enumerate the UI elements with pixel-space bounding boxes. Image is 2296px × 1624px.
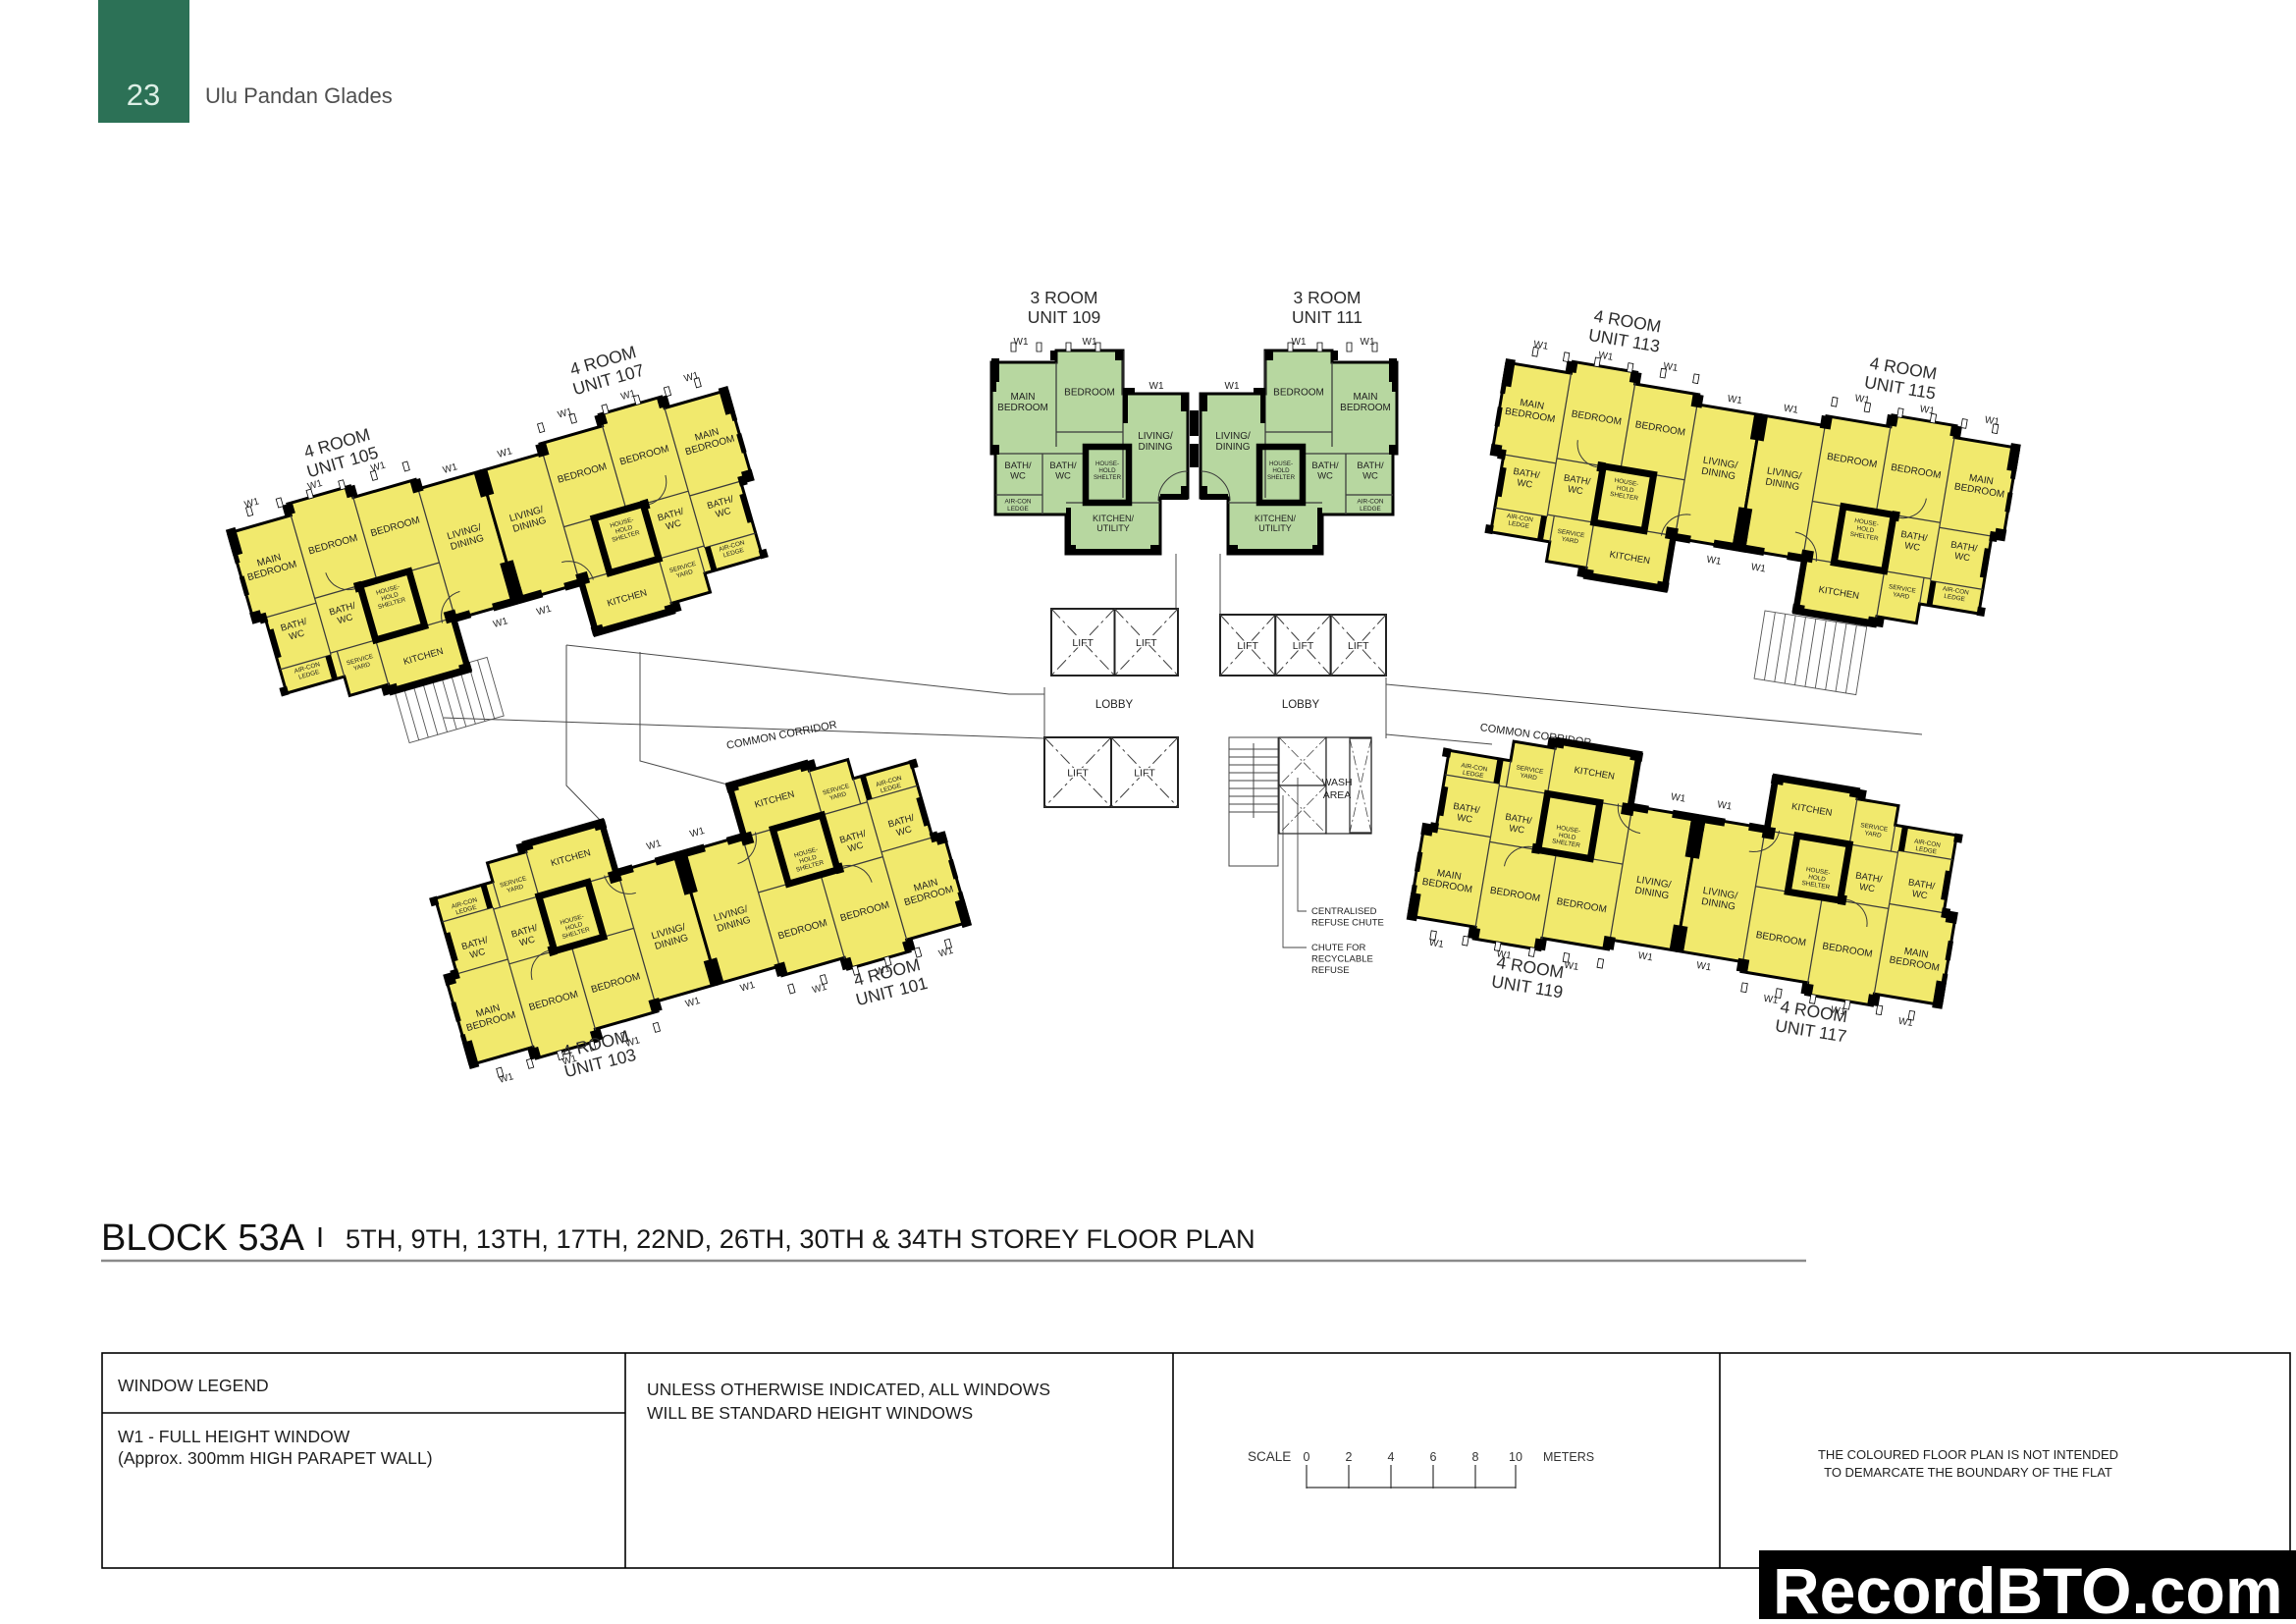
svg-text:WINDOW LEGEND: WINDOW LEGEND bbox=[118, 1376, 269, 1395]
svg-text:LIFT: LIFT bbox=[1293, 640, 1314, 652]
svg-text:KITCHEN/UTILITY: KITCHEN/UTILITY bbox=[1093, 514, 1135, 533]
svg-text:KITCHEN/UTILITY: KITCHEN/UTILITY bbox=[1255, 514, 1297, 533]
svg-text:CENTRALISEDREFUSE CHUTE: CENTRALISEDREFUSE CHUTE bbox=[1311, 906, 1384, 929]
svg-text:LIFT: LIFT bbox=[1348, 640, 1369, 652]
svg-text:LIFT: LIFT bbox=[1067, 768, 1089, 780]
svg-text:W1: W1 bbox=[1083, 337, 1097, 348]
svg-text:3 ROOMUNIT 109: 3 ROOMUNIT 109 bbox=[1028, 288, 1101, 327]
svg-text:BEDROOM: BEDROOM bbox=[1273, 388, 1324, 399]
svg-text:W1: W1 bbox=[1225, 381, 1240, 392]
svg-text:AIR-CONLEDGE: AIR-CONLEDGE bbox=[1358, 499, 1384, 513]
svg-text:5TH, 9TH, 13TH, 17TH, 22ND, 26: 5TH, 9TH, 13TH, 17TH, 22ND, 26TH, 30TH &… bbox=[346, 1223, 1255, 1254]
svg-text:METERS: METERS bbox=[1543, 1450, 1594, 1464]
svg-text:3 ROOMUNIT 111: 3 ROOMUNIT 111 bbox=[1292, 288, 1362, 327]
svg-text:W1: W1 bbox=[1014, 337, 1029, 348]
svg-text:LIFT: LIFT bbox=[1072, 637, 1094, 649]
svg-text:10: 10 bbox=[1509, 1450, 1522, 1464]
svg-text:AIR-CONLEDGE: AIR-CONLEDGE bbox=[1005, 499, 1032, 513]
svg-text:W1: W1 bbox=[1149, 381, 1164, 392]
svg-text:2: 2 bbox=[1346, 1450, 1353, 1464]
svg-text:LIFT: LIFT bbox=[1136, 637, 1157, 649]
svg-text:LIVING/DINING: LIVING/DINING bbox=[1215, 431, 1251, 453]
svg-text:WASHAREA: WASHAREA bbox=[1321, 777, 1352, 801]
svg-text:0: 0 bbox=[1304, 1450, 1310, 1464]
svg-text:8: 8 bbox=[1472, 1450, 1479, 1464]
svg-text:4: 4 bbox=[1388, 1450, 1395, 1464]
svg-text:BEDROOM: BEDROOM bbox=[1064, 388, 1115, 399]
svg-text:BLOCK 53A: BLOCK 53A bbox=[101, 1218, 305, 1259]
svg-text:LOBBY: LOBBY bbox=[1095, 699, 1134, 711]
svg-text:SCALE: SCALE bbox=[1248, 1449, 1291, 1464]
svg-text:W1: W1 bbox=[1361, 337, 1375, 348]
svg-text:23: 23 bbox=[127, 78, 160, 112]
svg-text:LIVING/DINING: LIVING/DINING bbox=[1138, 431, 1173, 453]
svg-text:RecordBTO.com: RecordBTO.com bbox=[1773, 1554, 2283, 1624]
svg-text:6: 6 bbox=[1430, 1450, 1437, 1464]
svg-text:LIFT: LIFT bbox=[1237, 640, 1258, 652]
svg-text:I: I bbox=[316, 1222, 324, 1254]
svg-text:LOBBY: LOBBY bbox=[1282, 699, 1320, 711]
svg-text:W1: W1 bbox=[1292, 337, 1307, 348]
svg-text:LIFT: LIFT bbox=[1134, 768, 1155, 780]
svg-text:Ulu Pandan Glades: Ulu Pandan Glades bbox=[205, 83, 393, 108]
